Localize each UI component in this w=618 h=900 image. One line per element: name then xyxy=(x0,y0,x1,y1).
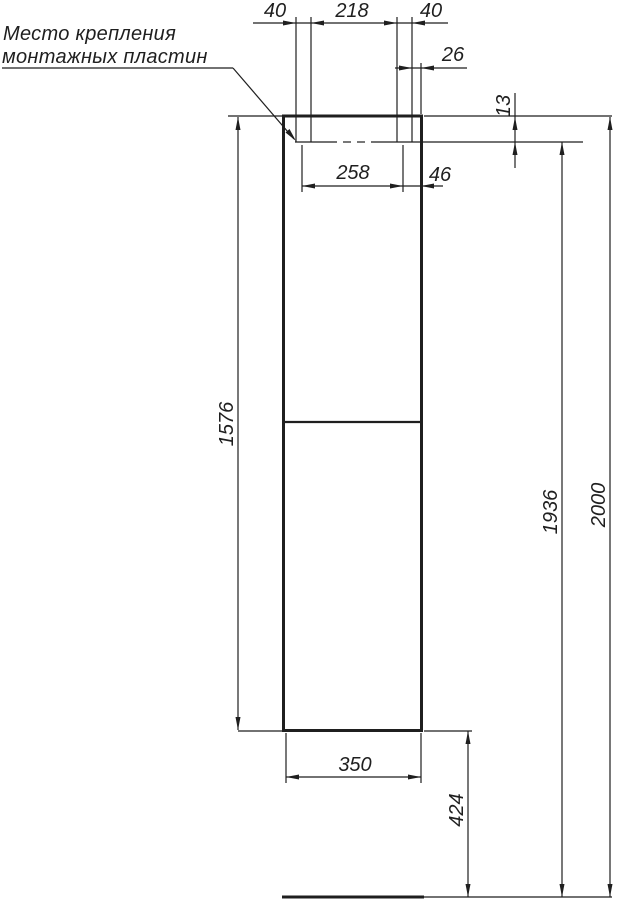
arrowhead-right xyxy=(384,21,397,26)
arrowhead-right xyxy=(408,775,421,780)
dimension-13: 13 xyxy=(493,93,518,168)
dim-46: 46 xyxy=(429,164,452,186)
dimension-2000: 2000 xyxy=(588,117,613,897)
dimension-1936: 1936 xyxy=(540,142,565,897)
dimension-424: 424 xyxy=(446,731,471,897)
arrowhead-up xyxy=(560,142,565,155)
arrowhead-up xyxy=(236,117,241,130)
dim-26: 26 xyxy=(441,44,465,66)
dim-40-left: 40 xyxy=(264,0,286,22)
dimension-350: 350 xyxy=(286,754,421,780)
dim-350: 350 xyxy=(338,754,371,776)
arrowhead-right xyxy=(390,184,403,189)
dim-13: 13 xyxy=(493,95,515,117)
cabinet-outline xyxy=(284,116,422,731)
dim-1936: 1936 xyxy=(540,489,562,534)
arrowhead-down xyxy=(560,884,565,897)
dim-1576: 1576 xyxy=(216,401,238,446)
dimension-top-row: 40 218 40 xyxy=(253,0,448,26)
arrowhead-up xyxy=(608,117,613,130)
arrowhead-down xyxy=(466,884,471,897)
arrowhead-left xyxy=(286,775,299,780)
arrowhead-down xyxy=(236,717,241,730)
dimension-1576: 1576 xyxy=(216,117,241,730)
arrowhead-up xyxy=(466,731,471,744)
arrowhead-left xyxy=(302,184,315,189)
dimension-258-46: 258 46 xyxy=(302,162,452,189)
dim-218: 218 xyxy=(334,0,368,22)
dim-2000: 2000 xyxy=(588,483,610,529)
arrowhead-up xyxy=(513,142,518,155)
dim-40-right: 40 xyxy=(420,0,442,22)
dim-424: 424 xyxy=(446,793,468,826)
callout: Место крепления монтажных пластин xyxy=(2,23,296,141)
dimension-26: 26 xyxy=(395,44,467,71)
technical-drawing-page: Место крепления монтажных пластин xyxy=(0,0,618,900)
dim-258: 258 xyxy=(335,162,369,184)
arrowhead-left xyxy=(311,21,324,26)
arrowhead-down xyxy=(608,884,613,897)
callout-text-line2: монтажных пластин xyxy=(2,46,208,68)
arrowhead-right xyxy=(399,66,412,71)
arrowhead-left xyxy=(421,66,434,71)
arrowhead-up xyxy=(513,117,518,130)
cabinet-dimension-drawing: Место крепления монтажных пластин xyxy=(0,0,618,900)
callout-text-line1: Место крепления xyxy=(3,23,176,45)
